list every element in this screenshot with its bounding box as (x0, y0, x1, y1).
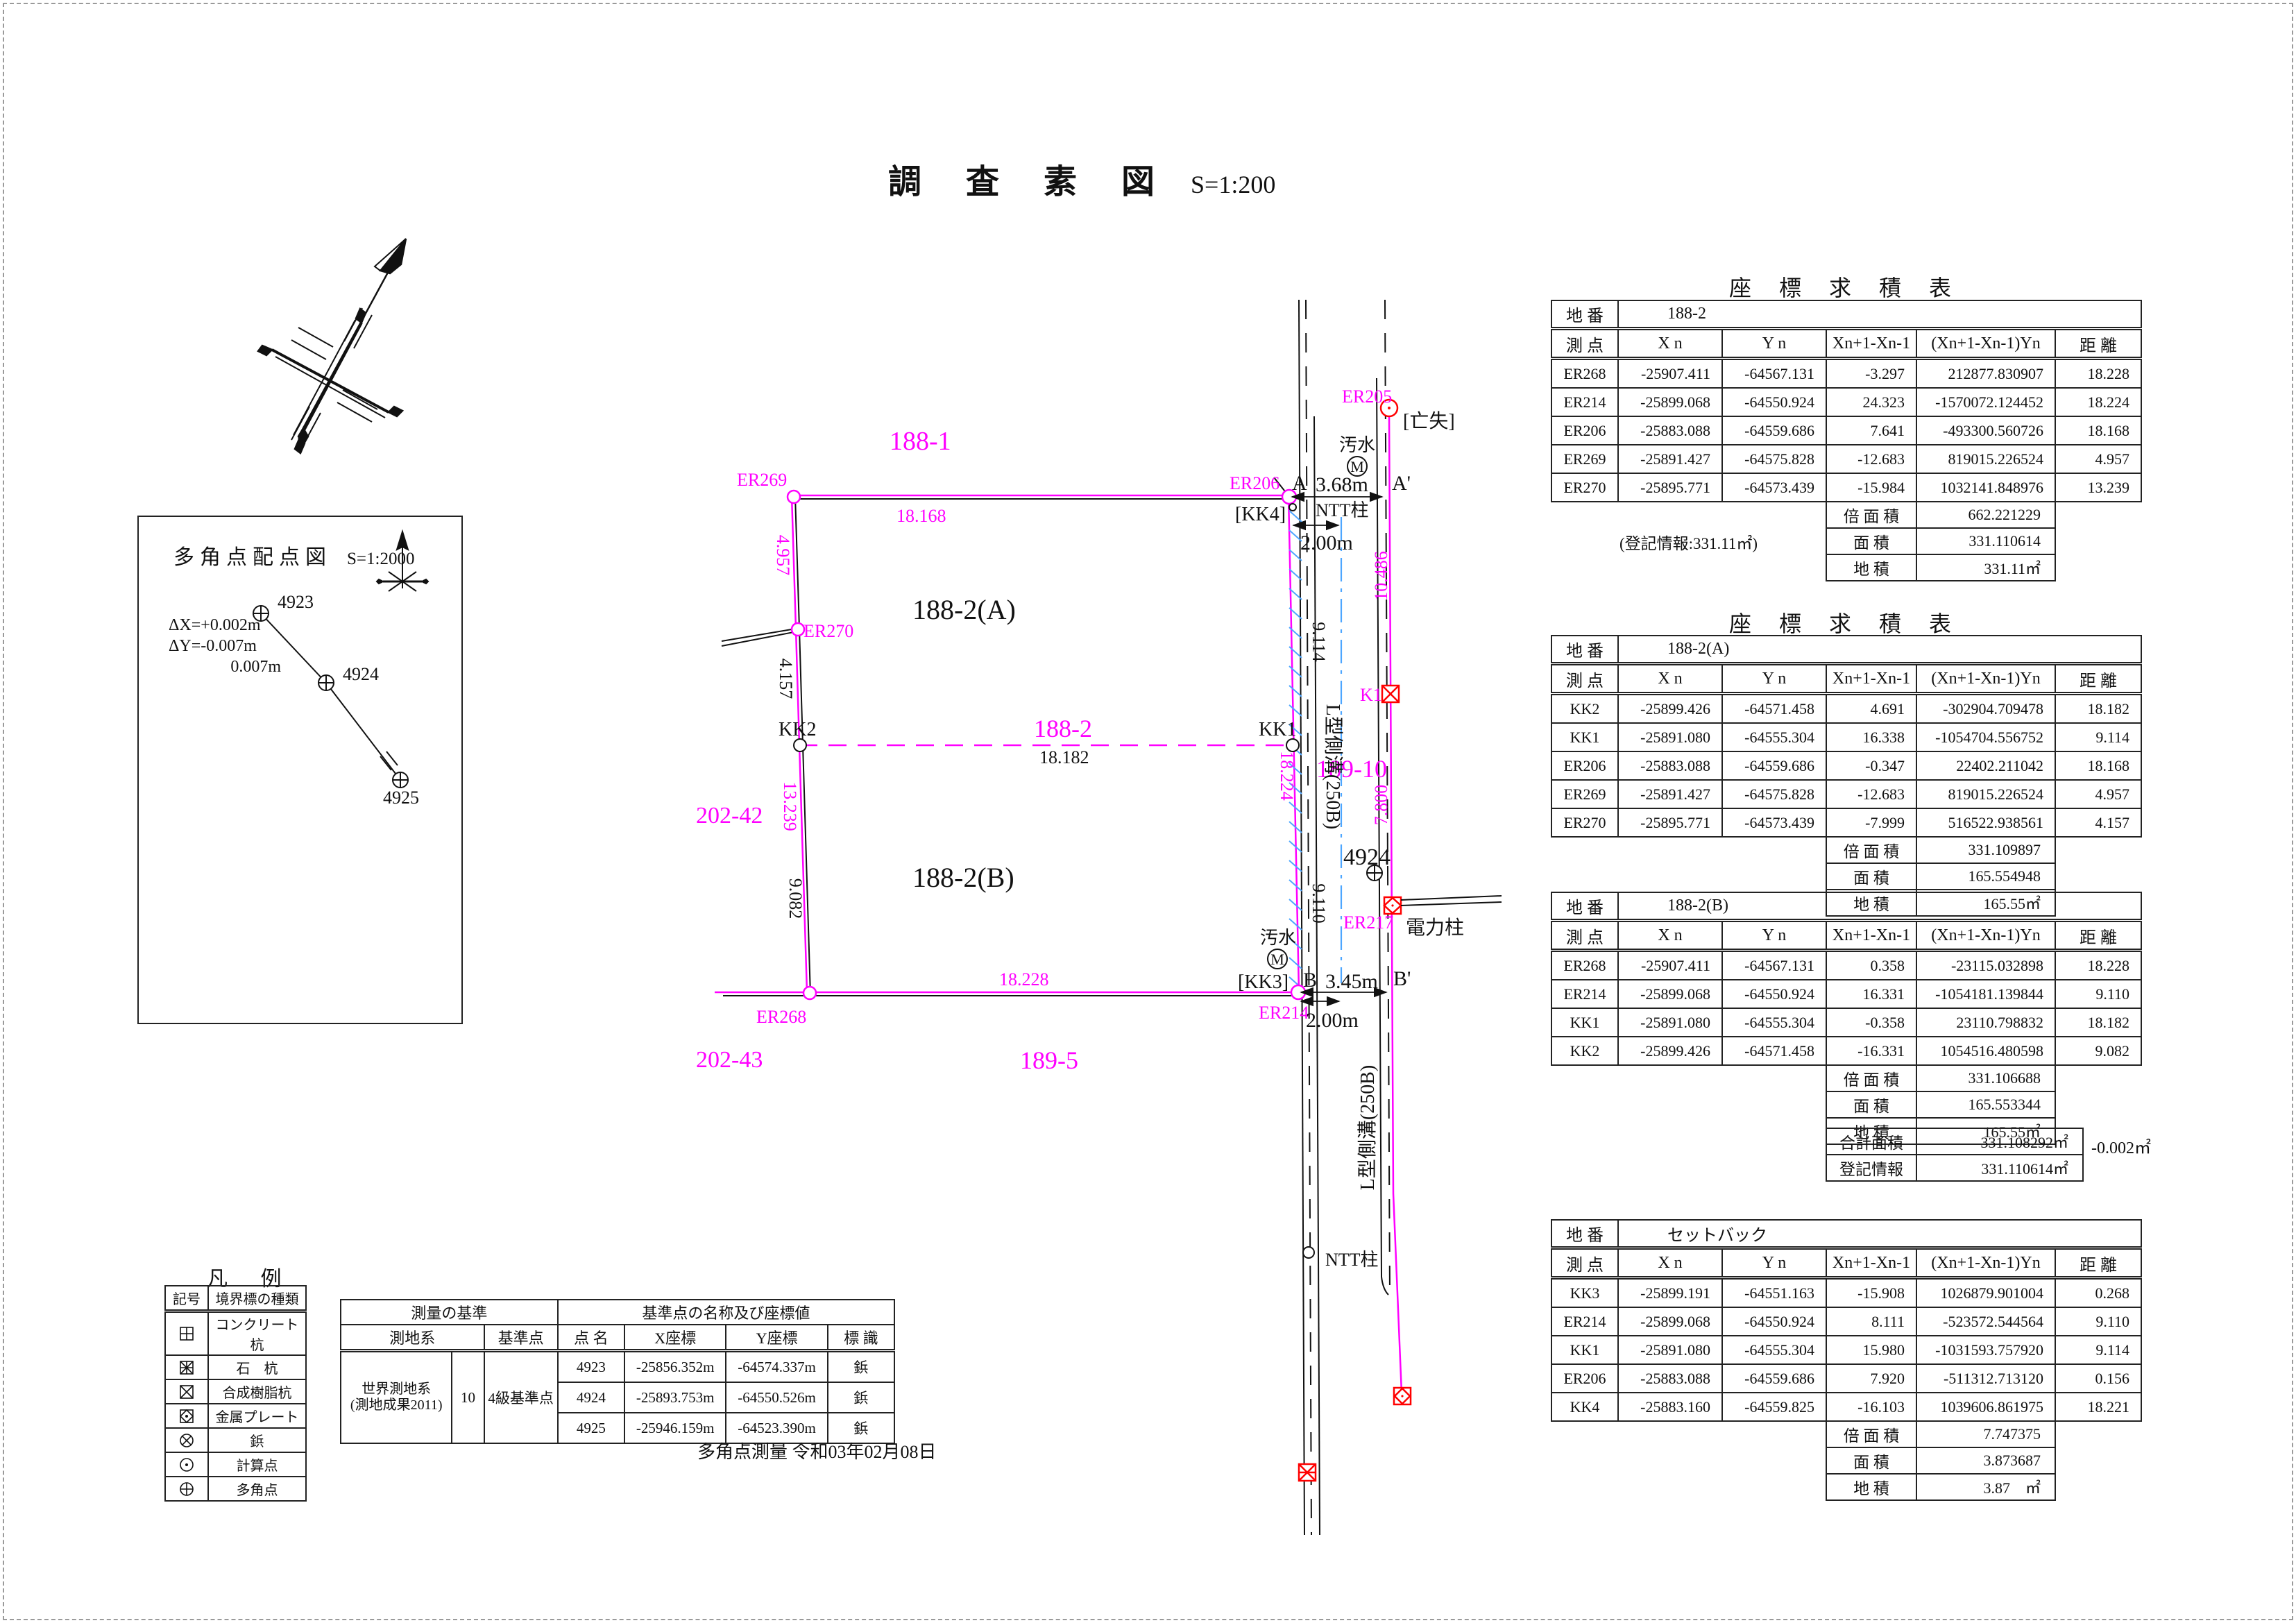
metal-plate-end-icon (1394, 1388, 1411, 1404)
kyuseki-table-188-2b: 地 番188-2(B) 測 点X nY nXn+1-Xn-1(Xn+1-Xn-1… (1551, 892, 2142, 1145)
table-cell: 819015.226524 (1916, 445, 2055, 473)
chiseki-label: 地 積 (1826, 554, 1916, 581)
table-cell: 22402.211042 (1916, 751, 2055, 780)
delta-x: ΔX=+0.002m (169, 615, 281, 636)
table-cell: 9.082 (2055, 1037, 2141, 1065)
table-cell: 4.157 (2055, 808, 2141, 837)
table-cell: 1026879.901004 (1916, 1278, 2055, 1308)
basis-x-header: X座標 (624, 1325, 726, 1351)
chiseki-value: 3.87 ㎡ (1916, 1474, 2055, 1500)
kyuseki-table-188-2: 地 番188-2 測 点X nY nXn+1-Xn-1(Xn+1-Xn-1)Yn… (1551, 300, 2142, 581)
cell: -25893.753m (624, 1382, 726, 1413)
dim-200m-bottom: 2.00m (1306, 1009, 1359, 1032)
label-b: B (1303, 969, 1317, 992)
table-cell: ER214 (1551, 1307, 1618, 1336)
table-cell: -12.683 (1826, 780, 1916, 808)
table-cell: 18.168 (2055, 751, 2141, 780)
table-cell: -64559.686 (1722, 751, 1826, 780)
label-lost: [亡失] (1403, 410, 1455, 432)
cell: 4925 (558, 1413, 624, 1443)
table-cell: -25883.088 (1618, 416, 1722, 445)
label-sewer-bottom: 汚水 (1260, 928, 1296, 948)
table-cell: 0.358 (1826, 951, 1916, 980)
table-cell: 0.268 (2055, 1278, 2141, 1308)
col-header: Xn+1-Xn-1 (1826, 664, 1916, 694)
table-cell: 18.221 (2055, 1393, 2141, 1421)
col-header: Xn+1-Xn-1 (1826, 921, 1916, 951)
basis-kijun-header: 基準点 (484, 1325, 558, 1351)
col-header: 測 点 (1551, 664, 1618, 694)
label-er269: ER269 (737, 470, 787, 490)
table-cell: ER270 (1551, 808, 1618, 837)
table-row: ER206-25883.088-64559.6867.641-493300.56… (1551, 416, 2141, 445)
table-cell: -511312.713120 (1916, 1364, 2055, 1393)
col-header: Y n (1722, 664, 1826, 694)
cell: -25856.352m (624, 1351, 726, 1383)
table-cell: -15.984 (1826, 473, 1916, 502)
table-cell: ER214 (1551, 388, 1618, 416)
point-kk1 (1286, 739, 1299, 751)
col-header: 測 点 (1551, 921, 1618, 951)
table-cell: -64567.131 (1722, 359, 1826, 389)
table-cell: KK3 (1551, 1278, 1618, 1308)
table-cell: KK1 (1551, 723, 1618, 751)
col-header: 測 点 (1551, 1248, 1618, 1278)
table-cell: -25907.411 (1618, 359, 1722, 389)
col-header: (Xn+1-Xn-1)Yn (1916, 1248, 2055, 1278)
concrete-pile-icon (178, 1325, 196, 1343)
table-cell: -64550.924 (1722, 1307, 1826, 1336)
table-cell: KK1 (1551, 1336, 1618, 1364)
calc-point-icon (178, 1456, 196, 1474)
legend-item-label: 計算点 (208, 1452, 306, 1477)
dim-18168: 18.168 (896, 506, 946, 526)
label-ntt-bottom: NTT柱 (1325, 1250, 1379, 1270)
survey-sheet: 4923 4924 4925 (0, 0, 2296, 1623)
chiban-value: 188-2 (1618, 300, 2141, 329)
table-cell: -64559.686 (1722, 1364, 1826, 1393)
col-header: X n (1618, 329, 1722, 359)
survey-date: 多角点測量 令和03年02月08日 (697, 1438, 937, 1463)
table-cell: -23115.032898 (1916, 951, 2055, 980)
delta-dist: 0.007m (169, 656, 281, 677)
table-cell: -64571.458 (1722, 694, 1826, 724)
label-kk2: KK2 (779, 719, 816, 740)
cell: -64574.337m (726, 1351, 827, 1383)
chiban-label: 地 番 (1551, 636, 1618, 664)
menseki-label: 面 積 (1826, 1091, 1916, 1118)
label-k1: K1 (1360, 685, 1382, 705)
table-cell: 16.331 (1826, 980, 1916, 1008)
dim-18224: 18.224 (1277, 751, 1297, 801)
traverse-point-icon (178, 1480, 196, 1498)
table-cell: ER268 (1551, 951, 1618, 980)
table-cell: 18.228 (2055, 951, 2141, 980)
table-cell: -16.103 (1826, 1393, 1916, 1421)
legend-table: 記号境界標の種類 コンクリート杭 石 杭 合成樹脂杭 金属プレート 鋲 計算点 … (164, 1285, 307, 1502)
parcel-label-188-2a: 188-2(A) (912, 594, 1016, 625)
basis-y-header: Y座標 (726, 1325, 827, 1351)
col-header: 距 離 (2055, 921, 2141, 951)
table-cell: KK2 (1551, 694, 1618, 724)
parcel-label-188-2b: 188-2(B) (912, 862, 1014, 893)
table-cell: -25899.191 (1618, 1278, 1722, 1308)
table-cell: -64555.304 (1722, 1336, 1826, 1364)
table-cell: -25883.088 (1618, 1364, 1722, 1393)
point-er268 (803, 987, 816, 999)
table-cell: -25883.088 (1618, 751, 1722, 780)
label-er268: ER268 (756, 1007, 806, 1027)
label-er206: ER206 (1230, 473, 1279, 493)
table-cell: -1054704.556752 (1916, 723, 2055, 751)
parcel-label-188-1: 188-1 (890, 427, 951, 456)
point-kk2 (794, 739, 806, 751)
table-cell: -25891.080 (1618, 723, 1722, 751)
table2-title: 座 標 求 積 表 (1551, 606, 2141, 638)
chiban-label: 地 番 (1551, 300, 1618, 329)
menseki-label: 面 積 (1826, 1447, 1916, 1474)
dim-7800: 7.800 (1371, 785, 1391, 826)
table-row: KK4-25883.160-64559.825-16.1031039606.86… (1551, 1393, 2141, 1421)
table-cell: ER268 (1551, 359, 1618, 389)
legend-item-label: 石 杭 (208, 1355, 306, 1379)
table-cell: -3.297 (1826, 359, 1916, 389)
basis-mark-header: 標 識 (828, 1325, 894, 1351)
table-cell: 7.641 (1826, 416, 1916, 445)
table-cell: -25899.068 (1618, 1307, 1722, 1336)
table-cell: -0.347 (1826, 751, 1916, 780)
dim-345m: 3.45m (1325, 970, 1378, 993)
dim-13239: 13.239 (780, 781, 800, 831)
table-cell: -0.358 (1826, 1008, 1916, 1037)
col-header: Xn+1-Xn-1 (1826, 329, 1916, 359)
table-row: ER269-25891.427-64575.828-12.683819015.2… (1551, 780, 2141, 808)
label-manhole-bottom: M (1270, 951, 1284, 968)
label-ntt-top: NTT柱 (1316, 500, 1369, 520)
table-row: ER269-25891.427-64575.828-12.683819015.2… (1551, 445, 2141, 473)
table-cell: -64575.828 (1722, 780, 1826, 808)
point-er270 (792, 623, 804, 636)
table-cell: -25891.080 (1618, 1008, 1722, 1037)
parcel-label-202-43: 202-43 (696, 1047, 763, 1073)
table-cell: -1570072.124452 (1916, 388, 2055, 416)
dim-10486: 10.486 (1371, 551, 1391, 601)
table-cell: 18.182 (2055, 1008, 2141, 1037)
basis-header-left: 測量の基準 (341, 1300, 558, 1325)
table-cell: ER206 (1551, 751, 1618, 780)
basis-name-header: 点 名 (558, 1325, 624, 1351)
table-cell: -64575.828 (1722, 445, 1826, 473)
table-cell: 4.691 (1826, 694, 1916, 724)
table-cell: 18.182 (2055, 694, 2141, 724)
kk-point-markers (794, 504, 1314, 1258)
table-cell: -493300.560726 (1916, 416, 2055, 445)
dim-9114: 9.114 (1309, 622, 1329, 662)
dim-9082: 9.082 (785, 878, 806, 919)
chiban-value: セットバック (1618, 1220, 2141, 1248)
menseki-value: 331.110614 (1916, 528, 2055, 554)
label-a: A (1292, 472, 1307, 495)
chiseki-label: 地 積 (1826, 1474, 1916, 1500)
table-cell: 7.920 (1826, 1364, 1916, 1393)
legend-item-label: 合成樹脂杭 (208, 1379, 306, 1404)
table-cell: 212877.830907 (1916, 359, 2055, 389)
table-cell: 23110.798832 (1916, 1008, 2055, 1037)
table-cell: 4.957 (2055, 445, 2141, 473)
dim-18182: 18.182 (1039, 747, 1089, 767)
label-manhole-top: M (1350, 458, 1364, 475)
chiban-value: 188-2(B) (1618, 892, 2141, 921)
table-cell: -25907.411 (1618, 951, 1722, 980)
table-cell: 4.957 (2055, 780, 2141, 808)
col-header: Y n (1722, 329, 1826, 359)
registry-area-label: 登記情報 (1826, 1155, 1916, 1181)
chiseki-value: 331.11㎡ (1916, 554, 2055, 581)
table-cell: ER269 (1551, 780, 1618, 808)
table-cell: -64550.924 (1722, 388, 1826, 416)
cell: -64550.526m (726, 1382, 827, 1413)
table-row: ER268-25907.411-64567.131-3.297212877.83… (1551, 359, 2141, 389)
label-kk3: [KK3] (1238, 971, 1289, 993)
table-cell: -25891.427 (1618, 445, 1722, 473)
col-header: X n (1618, 1248, 1722, 1278)
table-cell: 1039606.861975 (1916, 1393, 2055, 1421)
table-cell: -25899.068 (1618, 388, 1722, 416)
stone-pile-end-icon (1299, 1464, 1316, 1481)
label-er270: ER270 (803, 621, 853, 641)
menseki-value: 165.553344 (1916, 1091, 2055, 1118)
table-cell: -64559.686 (1722, 416, 1826, 445)
basis-datum-value: 世界測地系(測地成果2011) (341, 1351, 452, 1444)
table-cell: -64555.304 (1722, 1008, 1826, 1037)
col-header: 距 離 (2055, 1248, 2141, 1278)
inset-map-box (137, 516, 463, 1024)
table-row: ER214-25899.068-64550.9248.111-523572.54… (1551, 1307, 2141, 1336)
datum-name: 世界測地系 (362, 1382, 431, 1397)
table-cell: 516522.938561 (1916, 808, 2055, 837)
parcel-label-202-42: 202-42 (696, 803, 763, 829)
bai-menseki-value: 331.109897 (1916, 837, 2055, 863)
col-header: Y n (1722, 1248, 1826, 1278)
table-row: KK3-25899.191-64551.163-15.9081026879.90… (1551, 1278, 2141, 1308)
bai-menseki-label: 倍 面 積 (1826, 1065, 1916, 1091)
table-cell: -64551.163 (1722, 1278, 1826, 1308)
table-cell: -1054181.139844 (1916, 980, 2055, 1008)
bai-menseki-label: 倍 面 積 (1826, 837, 1916, 863)
page-title-scale: S=1:200 (1191, 170, 1275, 199)
menseki-label: 面 積 (1826, 863, 1916, 890)
table-cell: ER269 (1551, 445, 1618, 473)
table-cell: 13.239 (2055, 473, 2141, 502)
label-sewer-top: 汚水 (1339, 435, 1375, 455)
label-er214: ER214 (1259, 1003, 1309, 1023)
col-header: X n (1618, 921, 1722, 951)
cell: 4923 (558, 1351, 624, 1383)
dim-9110: 9.110 (1309, 883, 1329, 924)
col-header: 距 離 (2055, 329, 2141, 359)
legend-type-header: 境界標の種類 (208, 1286, 306, 1311)
table-cell: -25891.427 (1618, 780, 1722, 808)
table-row: KK1-25891.080-64555.304-0.35823110.79883… (1551, 1008, 2141, 1037)
table-cell: -302904.709478 (1916, 694, 2055, 724)
dim-368m: 3.68m (1316, 473, 1368, 496)
table-cell: 9.114 (2055, 1336, 2141, 1364)
point-er269 (788, 491, 800, 503)
table-row: ER270-25895.771-64573.439-15.9841032141.… (1551, 473, 2141, 502)
kyuseki-table-188-2a: 地 番188-2(A) 測 点X nY nXn+1-Xn-1(Xn+1-Xn-1… (1551, 635, 2142, 917)
bai-menseki-value: 7.747375 (1916, 1421, 2055, 1447)
table-cell: 9.114 (2055, 723, 2141, 751)
label-a-prime: A' (1392, 472, 1411, 495)
col-header: Xn+1-Xn-1 (1826, 1248, 1916, 1278)
inset-title-text: 多角点配点図 (173, 540, 332, 570)
menseki-value: 165.554948 (1916, 863, 2055, 890)
bai-menseki-label: 倍 面 積 (1826, 1421, 1916, 1447)
basis-datum-header: 測地系 (341, 1325, 484, 1351)
table-row: ER268-25907.411-64567.1310.358-23115.032… (1551, 951, 2141, 980)
table-row: ER206-25883.088-64559.686-0.34722402.211… (1551, 751, 2141, 780)
table-cell: KK1 (1551, 1008, 1618, 1037)
north-arrow-icon (258, 239, 406, 453)
table-cell: -64567.131 (1722, 951, 1826, 980)
delta-y: ΔY=-0.007m (169, 636, 281, 656)
stone-pile-icon (178, 1359, 196, 1377)
table-cell: ER214 (1551, 980, 1618, 1008)
datum-result: (測地成果2011) (350, 1397, 443, 1413)
kyuseki-table-setback: 地 番セットバック 測 点X nY nXn+1-Xn-1(Xn+1-Xn-1)Y… (1551, 1219, 2142, 1501)
tack-icon (178, 1431, 196, 1450)
table-cell: 18.168 (2055, 416, 2141, 445)
menseki-value: 3.873687 (1916, 1447, 2055, 1474)
table-cell: 819015.226524 (1916, 780, 2055, 808)
table-cell: -7.999 (1826, 808, 1916, 837)
ntt-pole-icon (1303, 1247, 1314, 1258)
label-kk1: KK1 (1259, 719, 1296, 740)
col-header: (Xn+1-Xn-1)Yn (1916, 329, 2055, 359)
dim-4157: 4.157 (776, 658, 796, 699)
col-header: X n (1618, 664, 1722, 694)
total-area-label: 合計面積 (1826, 1128, 1916, 1155)
point-kk4 (1289, 504, 1296, 511)
bai-menseki-label: 倍 面 積 (1826, 502, 1916, 528)
table-cell: 1032141.848976 (1916, 473, 2055, 502)
table-cell: -25891.080 (1618, 1336, 1722, 1364)
label-er205: ER205 (1342, 386, 1392, 407)
dim-18228: 18.228 (999, 969, 1049, 989)
basis-num: 10 (452, 1351, 484, 1444)
table-cell: 1054516.480598 (1916, 1037, 2055, 1065)
label-power-pole: 電力柱 (1406, 917, 1464, 939)
area-difference: -0.002㎡ (2091, 1134, 2151, 1158)
table-cell: -25895.771 (1618, 808, 1722, 837)
metal-plate-er217-icon (1384, 897, 1401, 914)
table-cell: 16.338 (1826, 723, 1916, 751)
table-row: ER214-25899.068-64550.92416.331-1054181.… (1551, 980, 2141, 1008)
cell: 4924 (558, 1382, 624, 1413)
inset-map-title: 多角点配点図 S=1:2000 (173, 540, 414, 570)
table-cell: -25899.068 (1618, 980, 1722, 1008)
table-row: ER206-25883.088-64559.6867.920-511312.71… (1551, 1364, 2141, 1393)
table-cell: -16.331 (1826, 1037, 1916, 1065)
legend-item-label: コンクリート杭 (208, 1311, 306, 1356)
table-cell: -25895.771 (1618, 473, 1722, 502)
col-header: Y n (1722, 921, 1826, 951)
legend-symbol-header: 記号 (165, 1286, 208, 1311)
table-cell: -64573.439 (1722, 808, 1826, 837)
col-header: 距 離 (2055, 664, 2141, 694)
table-row: KK1-25891.080-64555.30415.980-1031593.75… (1551, 1336, 2141, 1364)
menseki-label: 面 積 (1826, 528, 1916, 554)
chiban-label: 地 番 (1551, 892, 1618, 921)
label-kk4: [KK4] (1235, 504, 1286, 525)
table-cell: 0.156 (2055, 1364, 2141, 1393)
table-cell: -64555.304 (1722, 723, 1826, 751)
resin-pile-icon (178, 1383, 196, 1401)
table-row: KK1-25891.080-64555.30416.338-1054704.55… (1551, 723, 2141, 751)
label-er217: ER217 (1343, 912, 1393, 933)
table1-title: 座 標 求 積 表 (1551, 271, 2141, 303)
table-cell: 9.110 (2055, 1307, 2141, 1336)
metal-plate-icon (178, 1407, 196, 1425)
chiban-label: 地 番 (1551, 1220, 1618, 1248)
label-gutter-2: L型側溝(250B) (1357, 1065, 1379, 1190)
basis-header-right: 基準点の名称及び座標値 (558, 1300, 894, 1325)
table-cell: -64550.924 (1722, 980, 1826, 1008)
table-cell: -64573.439 (1722, 473, 1826, 502)
col-header: (Xn+1-Xn-1)Yn (1916, 921, 2055, 951)
inset-title-scale: S=1:2000 (347, 550, 414, 569)
chiban-value: 188-2(A) (1618, 636, 2141, 664)
table-row: ER214-25899.068-64550.92424.323-1570072.… (1551, 388, 2141, 416)
table-cell: 9.110 (2055, 980, 2141, 1008)
bai-menseki-value: 331.106688 (1916, 1065, 2055, 1091)
registry-area-value: 331.110614㎡ (1916, 1155, 2083, 1181)
table-cell: 8.111 (1826, 1307, 1916, 1336)
legend-item-label: 金属プレート (208, 1404, 306, 1428)
table-row: ER270-25895.771-64573.439-7.999516522.93… (1551, 808, 2141, 837)
sum-area-table: 合計面積331.108292㎡ 登記情報331.110614㎡ (1826, 1128, 2084, 1182)
basis-kijun-value: 4級基準点 (484, 1351, 558, 1444)
cell: 鋲 (828, 1382, 894, 1413)
table-cell: ER206 (1551, 416, 1618, 445)
resin-pile-k1-icon (1382, 686, 1399, 702)
table-row: KK2-25899.426-64571.458-16.3311054516.48… (1551, 1037, 2141, 1065)
table-row: KK2-25899.426-64571.4584.691-302904.7094… (1551, 694, 2141, 724)
parcel-label-189-5: 189-5 (1020, 1046, 1078, 1074)
table-cell: -25899.426 (1618, 1037, 1722, 1065)
inset-delta-block: ΔX=+0.002m ΔY=-0.007m 0.007m (169, 615, 281, 677)
table-cell: -64571.458 (1722, 1037, 1826, 1065)
cell: 鋲 (828, 1351, 894, 1383)
table-cell: -1031593.757920 (1916, 1336, 2055, 1364)
legend-item-label: 多角点 (208, 1477, 306, 1501)
col-header: (Xn+1-Xn-1)Yn (1916, 664, 2055, 694)
table-cell: ER206 (1551, 1364, 1618, 1393)
label-gutter-1: L型側溝(250B) (1322, 704, 1344, 829)
dim-4957: 4.957 (773, 535, 793, 576)
table-cell: -523572.544564 (1916, 1307, 2055, 1336)
page-title-text: 調 査 素 図 (888, 154, 1173, 203)
table-cell: 18.228 (2055, 359, 2141, 389)
label-b-prime: B' (1393, 967, 1411, 990)
bai-menseki-value: 662.221229 (1916, 502, 2055, 528)
table-cell: 24.323 (1826, 388, 1916, 416)
table-cell: 18.224 (2055, 388, 2141, 416)
page-title: 調 査 素 図 S=1:200 (888, 154, 1275, 203)
label-4924: 4924 (1343, 844, 1391, 870)
table-cell: KK2 (1551, 1037, 1618, 1065)
power-pole-wires (1401, 896, 1502, 906)
